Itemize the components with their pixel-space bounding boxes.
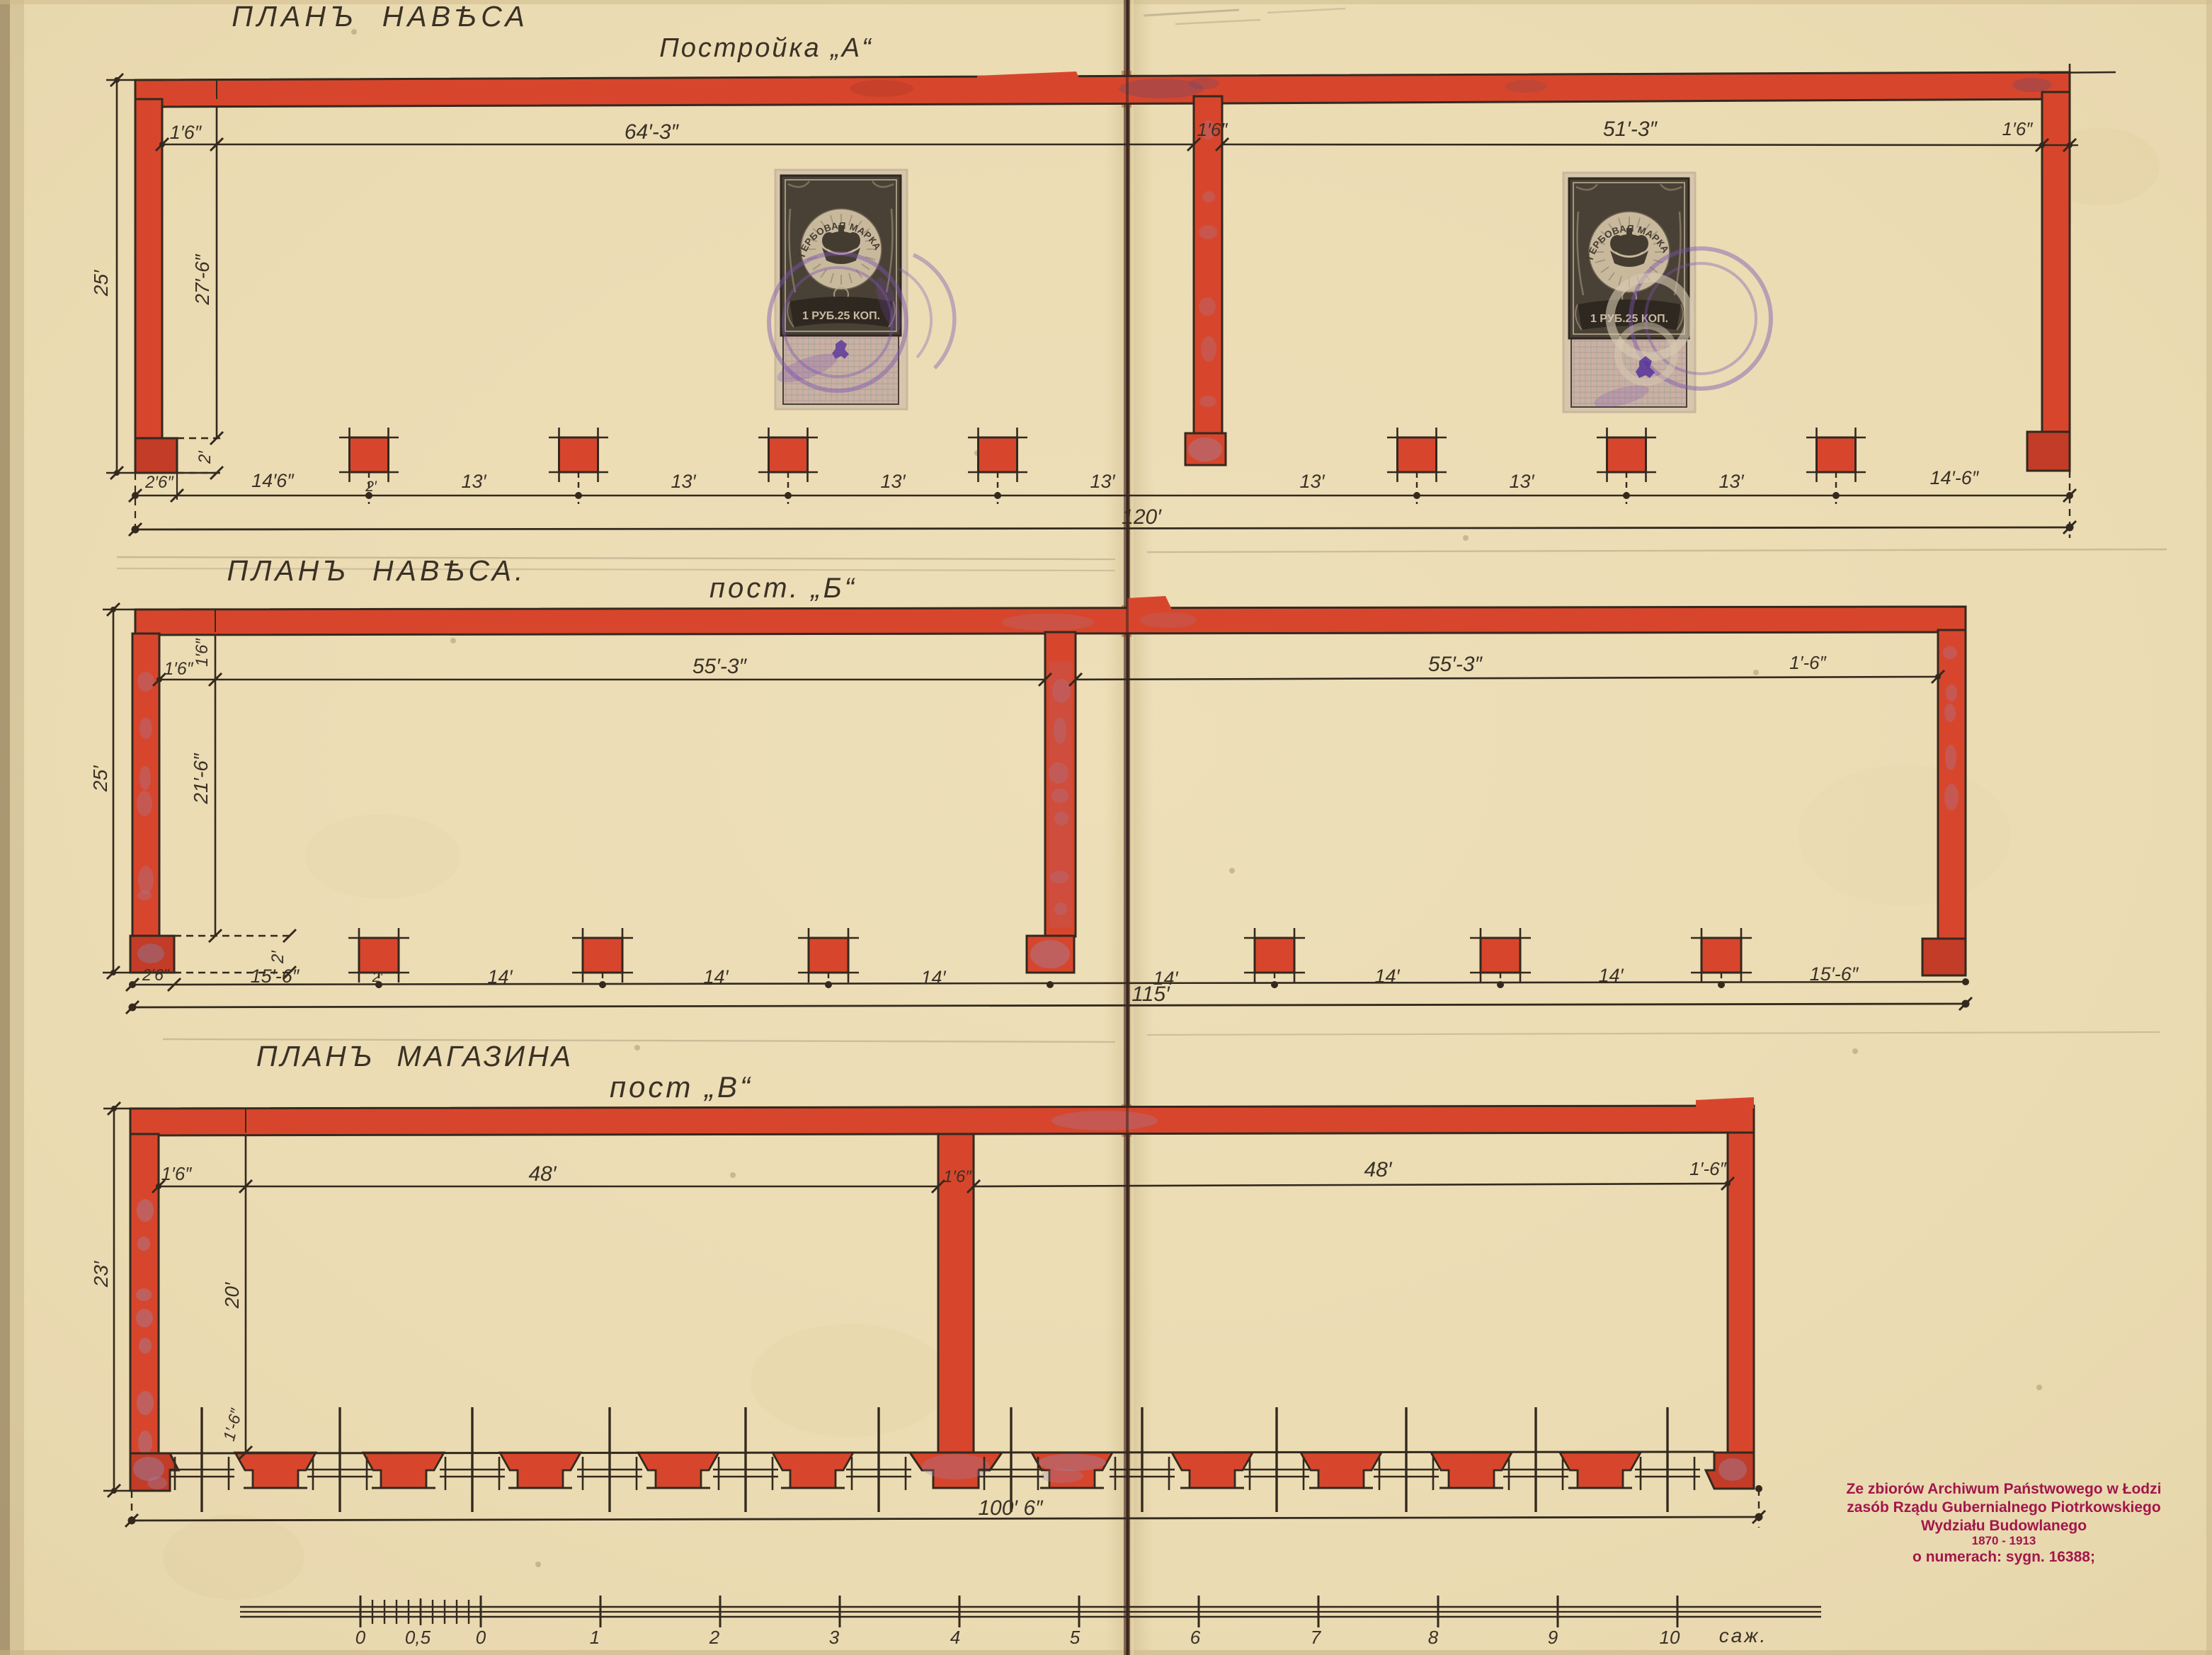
svg-text:1′6″: 1′6″ [170, 122, 203, 143]
svg-text:115′: 115′ [1131, 983, 1170, 1006]
svg-text:23′: 23′ [90, 1260, 112, 1288]
svg-text:Wydziału Budowlanego: Wydziału Budowlanego [1921, 1518, 2087, 1534]
svg-text:14′: 14′ [920, 967, 946, 988]
svg-text:1′6″: 1′6″ [161, 1163, 193, 1184]
svg-text:2′: 2′ [195, 450, 215, 464]
svg-text:13′: 13′ [1509, 471, 1534, 492]
svg-text:13′: 13′ [1299, 471, 1325, 492]
svg-text:2′: 2′ [268, 950, 287, 964]
svg-text:55′-3″: 55′-3″ [1428, 653, 1483, 676]
svg-text:zasób Rządu Gubernialnego Piot: zasób Rządu Gubernialnego Piotrkowskiego [1847, 1499, 2160, 1516]
svg-text:ПЛАНЪ НАВѢСА: ПЛАНЪ НАВѢСА [232, 0, 529, 33]
svg-text:13′: 13′ [1718, 471, 1744, 492]
svg-text:100′ 6″: 100′ 6″ [978, 1496, 1044, 1520]
svg-text:саж.: саж. [1719, 1625, 1768, 1647]
svg-text:15′-6″: 15′-6″ [251, 966, 300, 987]
svg-text:21′-6″: 21′-6″ [190, 752, 212, 804]
svg-text:4: 4 [950, 1627, 960, 1648]
svg-text:13′: 13′ [880, 471, 906, 492]
svg-text:64′-3″: 64′-3″ [625, 120, 680, 144]
svg-text:0: 0 [476, 1627, 486, 1648]
svg-text:48′: 48′ [1364, 1158, 1393, 1181]
svg-text:48′: 48′ [529, 1162, 557, 1186]
svg-text:1′6″: 1′6″ [2002, 118, 2034, 139]
svg-text:5: 5 [1070, 1627, 1081, 1648]
svg-text:2′: 2′ [365, 479, 377, 495]
svg-text:20′: 20′ [221, 1281, 243, 1309]
svg-text:пост „В“: пост „В“ [610, 1070, 753, 1104]
svg-text:7: 7 [1311, 1627, 1322, 1648]
svg-text:27′-6″: 27′-6″ [191, 253, 213, 305]
svg-text:1: 1 [590, 1627, 600, 1648]
svg-text:1′6″: 1′6″ [1197, 119, 1228, 140]
svg-text:10: 10 [1660, 1627, 1680, 1648]
svg-text:13′: 13′ [671, 471, 696, 492]
svg-text:2′6″: 2′6″ [142, 966, 170, 984]
svg-text:14′: 14′ [703, 966, 729, 987]
svg-text:13′: 13′ [1090, 471, 1115, 492]
svg-text:1′-6″: 1′-6″ [1689, 1158, 1726, 1179]
svg-text:1′6″: 1′6″ [943, 1167, 972, 1186]
svg-text:2′6″: 2′6″ [144, 473, 174, 492]
svg-text:25′: 25′ [89, 764, 111, 792]
svg-text:55′-3″: 55′-3″ [692, 655, 748, 678]
svg-text:1 РУБ.25 КОП.: 1 РУБ.25 КОП. [802, 310, 880, 322]
svg-text:1′6″: 1′6″ [193, 638, 212, 667]
svg-text:14′: 14′ [1374, 966, 1400, 987]
svg-text:25′: 25′ [90, 269, 112, 297]
svg-text:Постройка „А“: Постройка „А“ [659, 33, 873, 63]
svg-text:14′: 14′ [487, 966, 513, 987]
svg-text:14′-6″: 14′-6″ [1930, 467, 1980, 488]
svg-text:2′: 2′ [372, 970, 384, 985]
svg-text:14′: 14′ [1598, 965, 1624, 986]
svg-text:13′: 13′ [461, 471, 486, 492]
svg-text:14′6″: 14′6″ [251, 470, 295, 491]
svg-text:1′6″: 1′6″ [164, 659, 193, 679]
svg-text:0,5: 0,5 [405, 1627, 431, 1648]
svg-text:ПЛАНЪ НАВѢСА.: ПЛАНЪ НАВѢСА. [227, 554, 526, 587]
svg-text:51′-3″: 51′-3″ [1603, 118, 1658, 141]
svg-text:15′-6″: 15′-6″ [1810, 963, 1859, 985]
svg-text:3: 3 [829, 1627, 840, 1648]
svg-text:1′-6″: 1′-6″ [1789, 652, 1826, 673]
svg-text:6: 6 [1190, 1627, 1201, 1648]
svg-text:8: 8 [1428, 1627, 1439, 1648]
svg-text:o numerach: sygn. 16388;: o numerach: sygn. 16388; [1912, 1549, 2095, 1565]
svg-text:Ze zbiorów Archiwum Państwoweg: Ze zbiorów Archiwum Państwowego w Łodzi [1847, 1481, 2162, 1497]
svg-text:0: 0 [355, 1627, 366, 1648]
svg-text:9: 9 [1548, 1627, 1558, 1648]
svg-text:2: 2 [709, 1627, 720, 1648]
svg-text:пост. „Б“: пост. „Б“ [709, 573, 857, 604]
svg-text:ПЛАНЪ МАГАЗИНА: ПЛАНЪ МАГАЗИНА [256, 1040, 574, 1072]
svg-text:1870 - 1913: 1870 - 1913 [1972, 1534, 2036, 1547]
